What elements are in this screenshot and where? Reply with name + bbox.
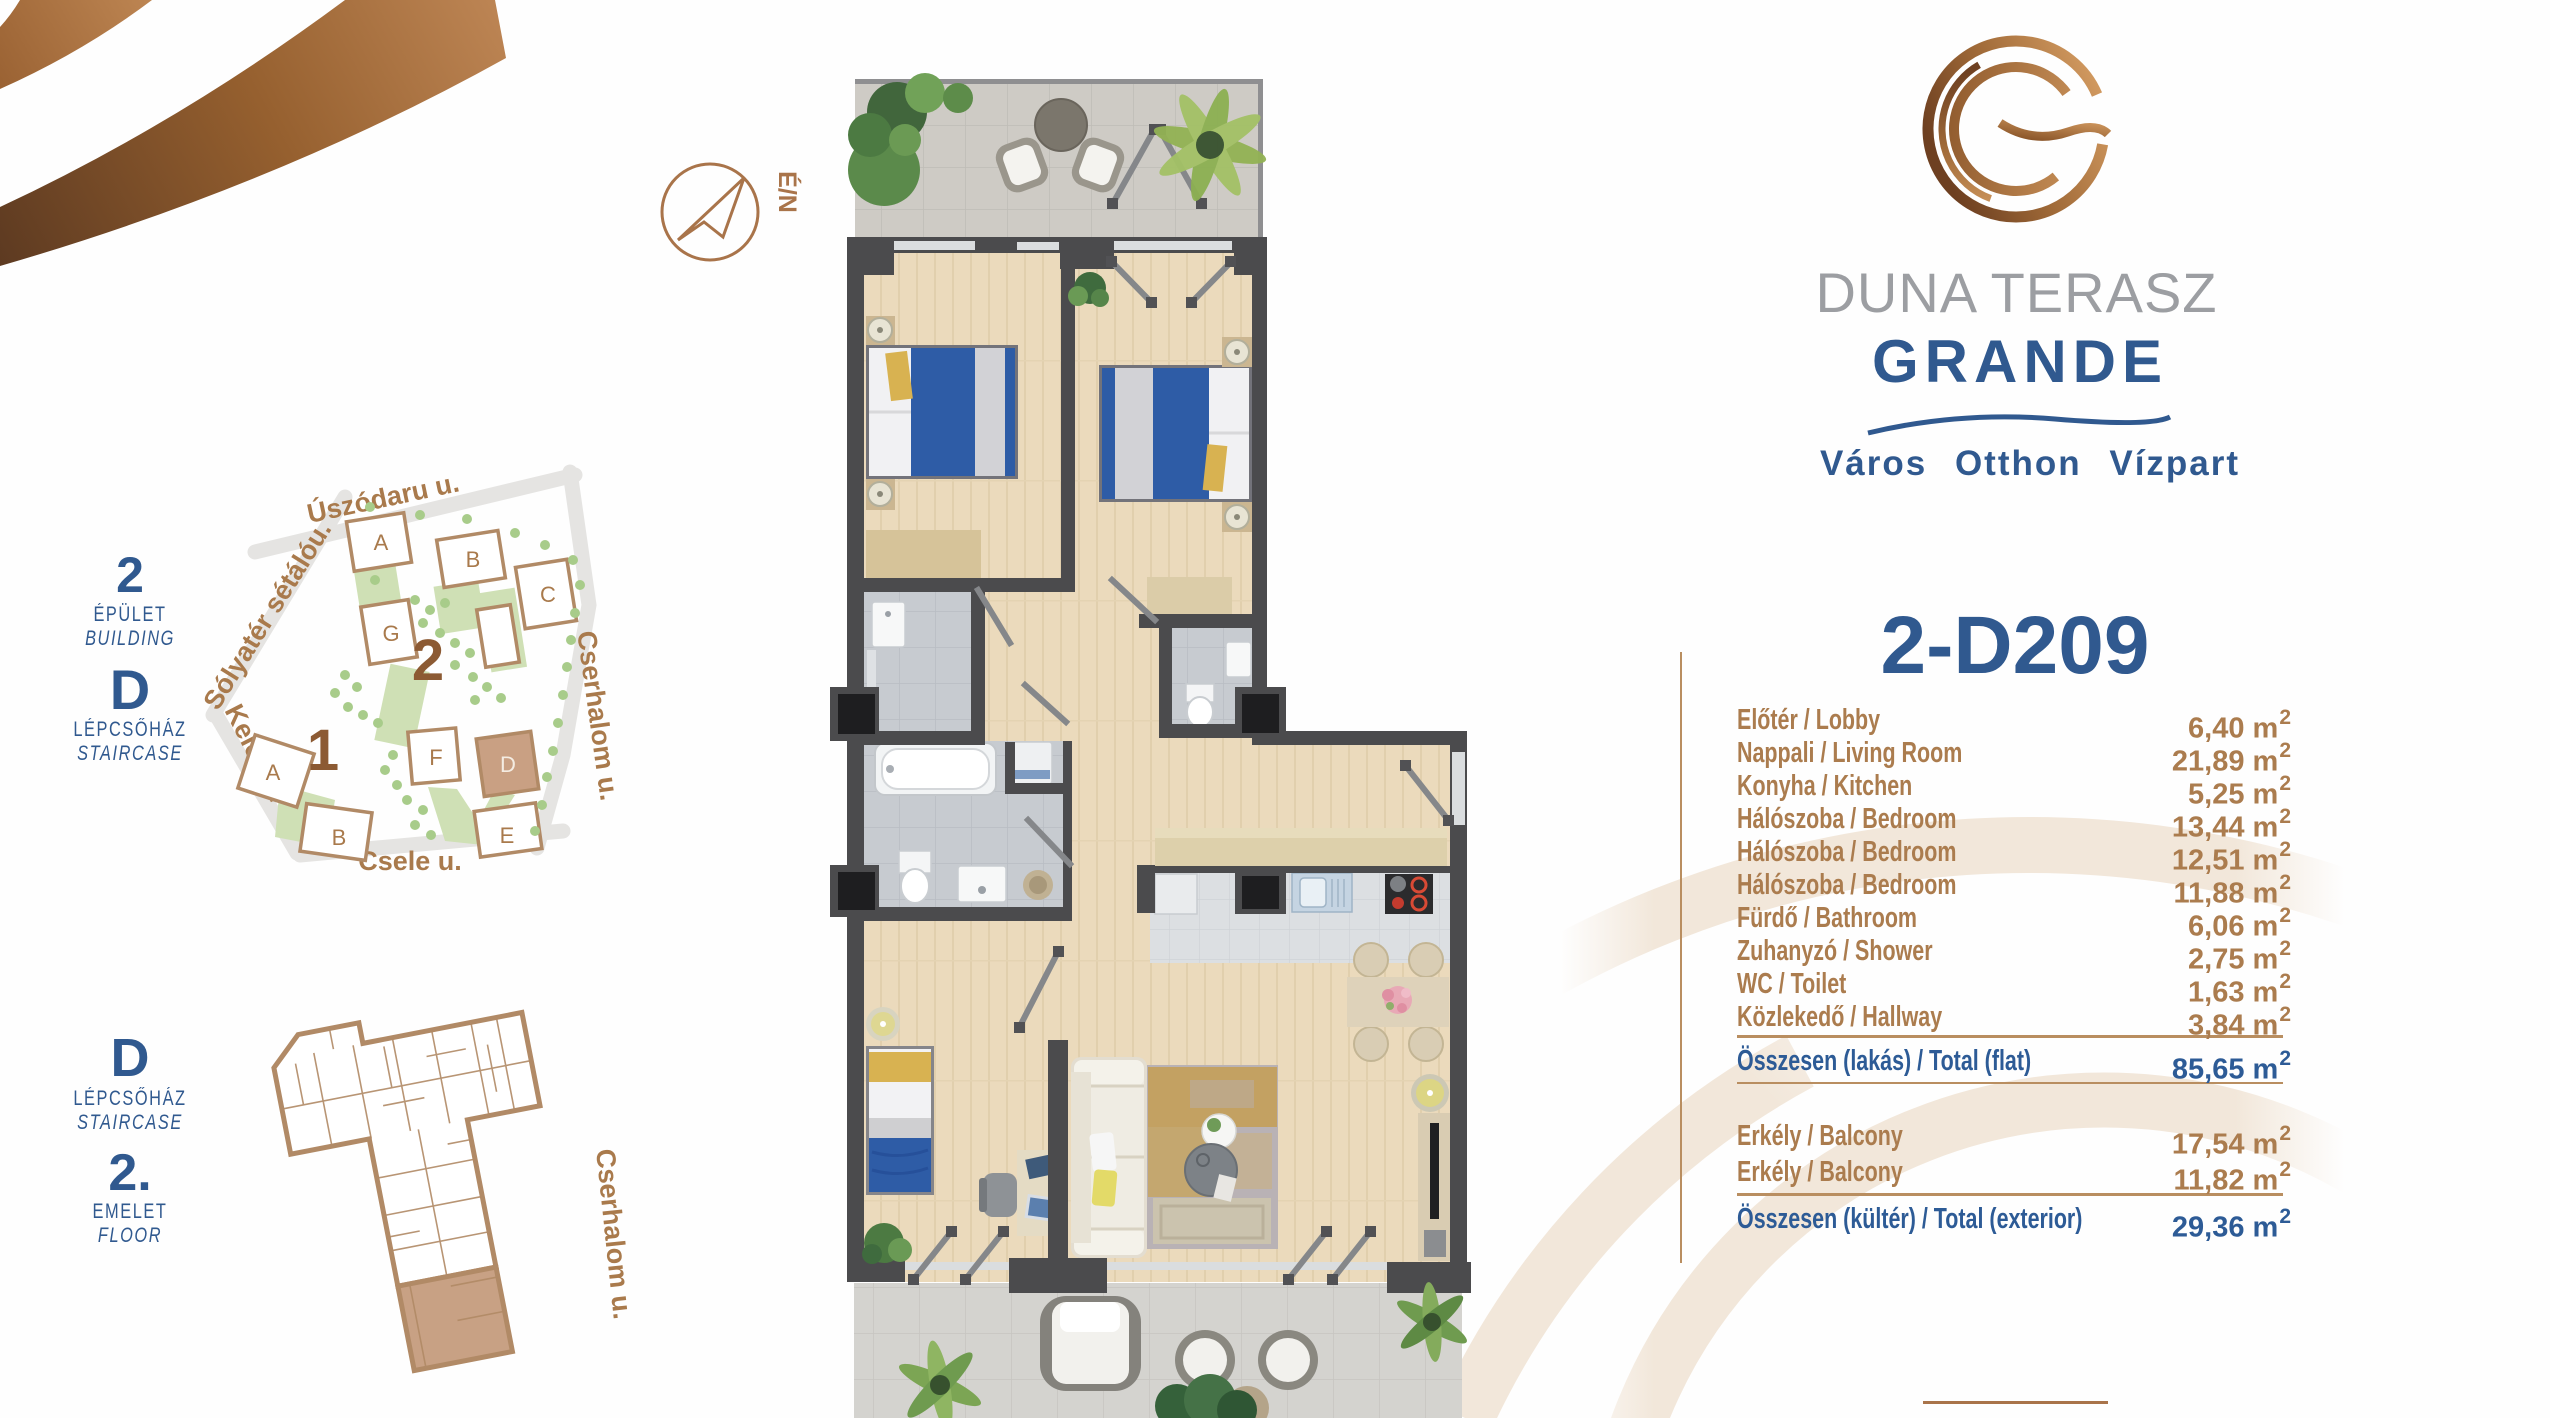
svg-text:B: B <box>332 825 347 850</box>
svg-text:1: 1 <box>307 718 339 783</box>
svg-text:A: A <box>374 530 389 555</box>
svg-text:G: G <box>382 621 399 646</box>
svg-text:F: F <box>429 745 442 770</box>
svg-text:E: E <box>500 823 515 848</box>
svg-text:D: D <box>500 752 516 777</box>
svg-text:C: C <box>540 582 556 607</box>
svg-text:Cserhalom u.: Cserhalom u. <box>590 1147 638 1320</box>
svg-text:Cserhalom u.: Cserhalom u. <box>571 629 615 803</box>
svg-text:Csele u.: Csele u. <box>358 846 462 875</box>
svg-text:B: B <box>466 547 481 572</box>
svg-text:É/N: É/N <box>773 171 802 213</box>
svg-text:A: A <box>266 760 281 785</box>
